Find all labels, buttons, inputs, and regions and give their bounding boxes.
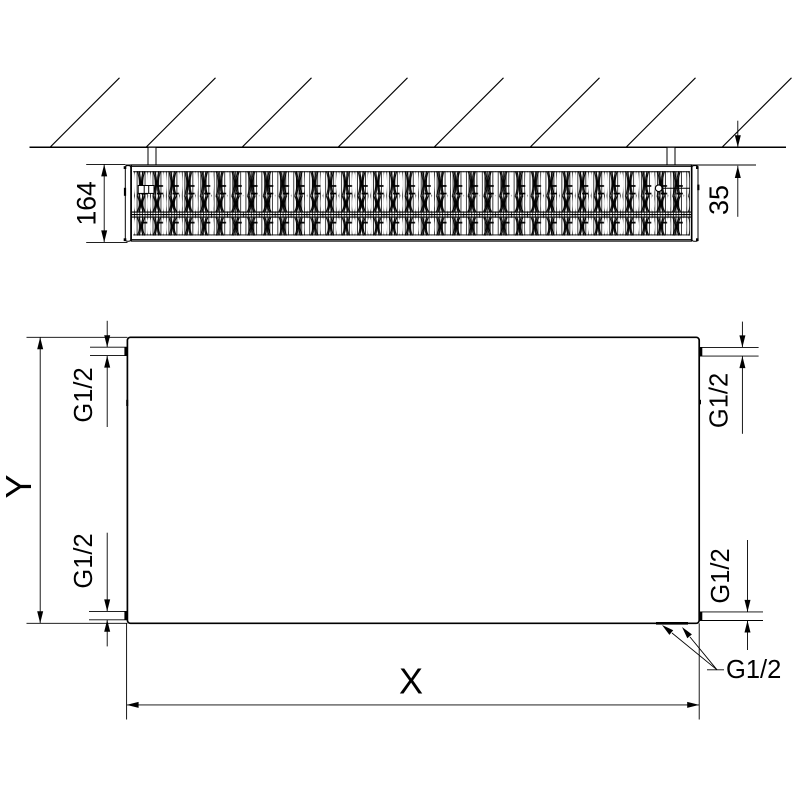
svg-text:G1/2: G1/2: [70, 367, 98, 422]
svg-text:X: X: [399, 661, 423, 702]
svg-text:G1/2: G1/2: [70, 533, 98, 588]
svg-text:35: 35: [704, 185, 734, 215]
svg-text:Y: Y: [0, 474, 39, 498]
svg-text:G1/2: G1/2: [726, 656, 781, 684]
svg-text:G1/2: G1/2: [707, 548, 735, 603]
svg-text:G1/2: G1/2: [706, 373, 734, 428]
svg-text:164: 164: [72, 181, 102, 225]
